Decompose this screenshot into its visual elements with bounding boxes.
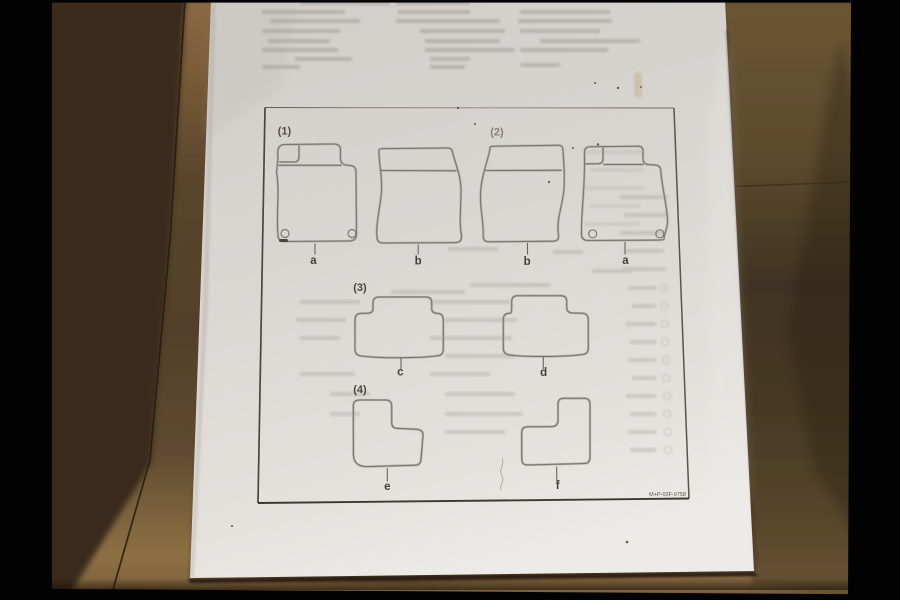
svg-text:a: a [622, 255, 629, 267]
svg-text:c: c [397, 367, 404, 379]
svg-text:a: a [310, 255, 317, 267]
svg-text:(4): (4) [353, 384, 367, 396]
svg-text:f: f [556, 480, 560, 492]
svg-text:(3): (3) [353, 282, 367, 294]
svg-text:d: d [540, 367, 547, 379]
svg-text:b: b [524, 256, 531, 268]
svg-text:M+P-03F-9758: M+P-03F-9758 [649, 492, 686, 498]
svg-text:(2): (2) [490, 127, 504, 139]
svg-text:b: b [415, 256, 422, 268]
svg-text:e: e [384, 481, 390, 493]
svg-text:(1): (1) [278, 126, 292, 138]
